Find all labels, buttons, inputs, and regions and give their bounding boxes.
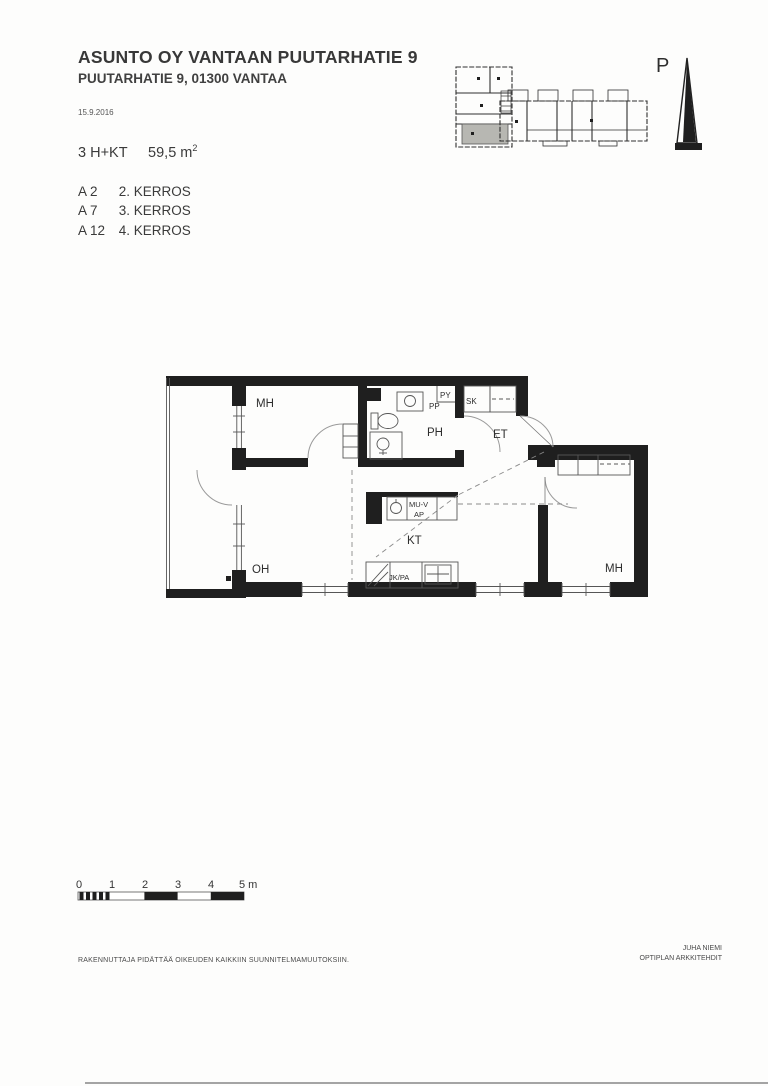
- room-label-bathroom: PH: [427, 427, 443, 439]
- sink: [370, 432, 402, 459]
- window: [476, 583, 524, 596]
- washing-machine: [397, 392, 423, 411]
- label-muv: MU-V: [409, 500, 428, 509]
- bedroom-right-door-arc: [545, 477, 577, 508]
- scale-bar: 0 1 2 3 4 5 m: [76, 879, 257, 900]
- window: [302, 583, 348, 596]
- window: [562, 583, 610, 596]
- floor-plan: MH PH ET OH KT MH SK PY PP MU-V AP JK/PA…: [0, 0, 768, 1086]
- room-label-bedroom-top: MH: [256, 398, 274, 410]
- dashed-lines: [352, 452, 568, 580]
- scale-tick-1: 1: [109, 879, 115, 891]
- label-sk: SK: [466, 397, 477, 406]
- scale-tick-3: 3: [175, 879, 181, 891]
- scale-tick-4: 4: [208, 879, 214, 891]
- architect-firm: OPTIPLAN ARKKITEHDIT: [640, 954, 722, 964]
- room-labels: MH PH ET OH KT MH SK PY PP MU-V AP JK/PA: [252, 391, 623, 582]
- scale-tick-2: 2: [142, 879, 148, 891]
- label-jkpa: JK/PA: [389, 573, 409, 582]
- room-label-entry: ET: [493, 429, 508, 441]
- architect-block: JUHA NIEMI OPTIPLAN ARKKITEHDIT: [640, 944, 722, 964]
- label-ap: AP: [414, 510, 424, 519]
- room-label-bedroom-right: MH: [605, 563, 623, 575]
- scale-tick-0: 0: [76, 879, 82, 891]
- entry-door-leaf: [520, 416, 553, 447]
- room-label-living: OH: [252, 564, 269, 576]
- architect-name: JUHA NIEMI: [640, 944, 722, 954]
- toilet: [371, 413, 398, 429]
- kitchen-sink: [391, 503, 402, 514]
- walls: [166, 376, 648, 598]
- scale-tick-5: 5 m: [239, 879, 257, 891]
- wardrobe: [343, 424, 358, 458]
- label-py: PY: [440, 391, 451, 400]
- fixtures: [167, 378, 631, 596]
- room-label-kitchen: KT: [407, 535, 422, 547]
- bedroom-top-door-arc: [308, 424, 343, 458]
- label-pp: PP: [429, 402, 440, 411]
- page-edge-line: [85, 1082, 768, 1084]
- disclaimer-text: RAKENNUTTAJA PIDÄTTÄÄ OIKEUDEN KAIKKIIN …: [78, 957, 349, 964]
- balcony-door-arc: [197, 470, 232, 505]
